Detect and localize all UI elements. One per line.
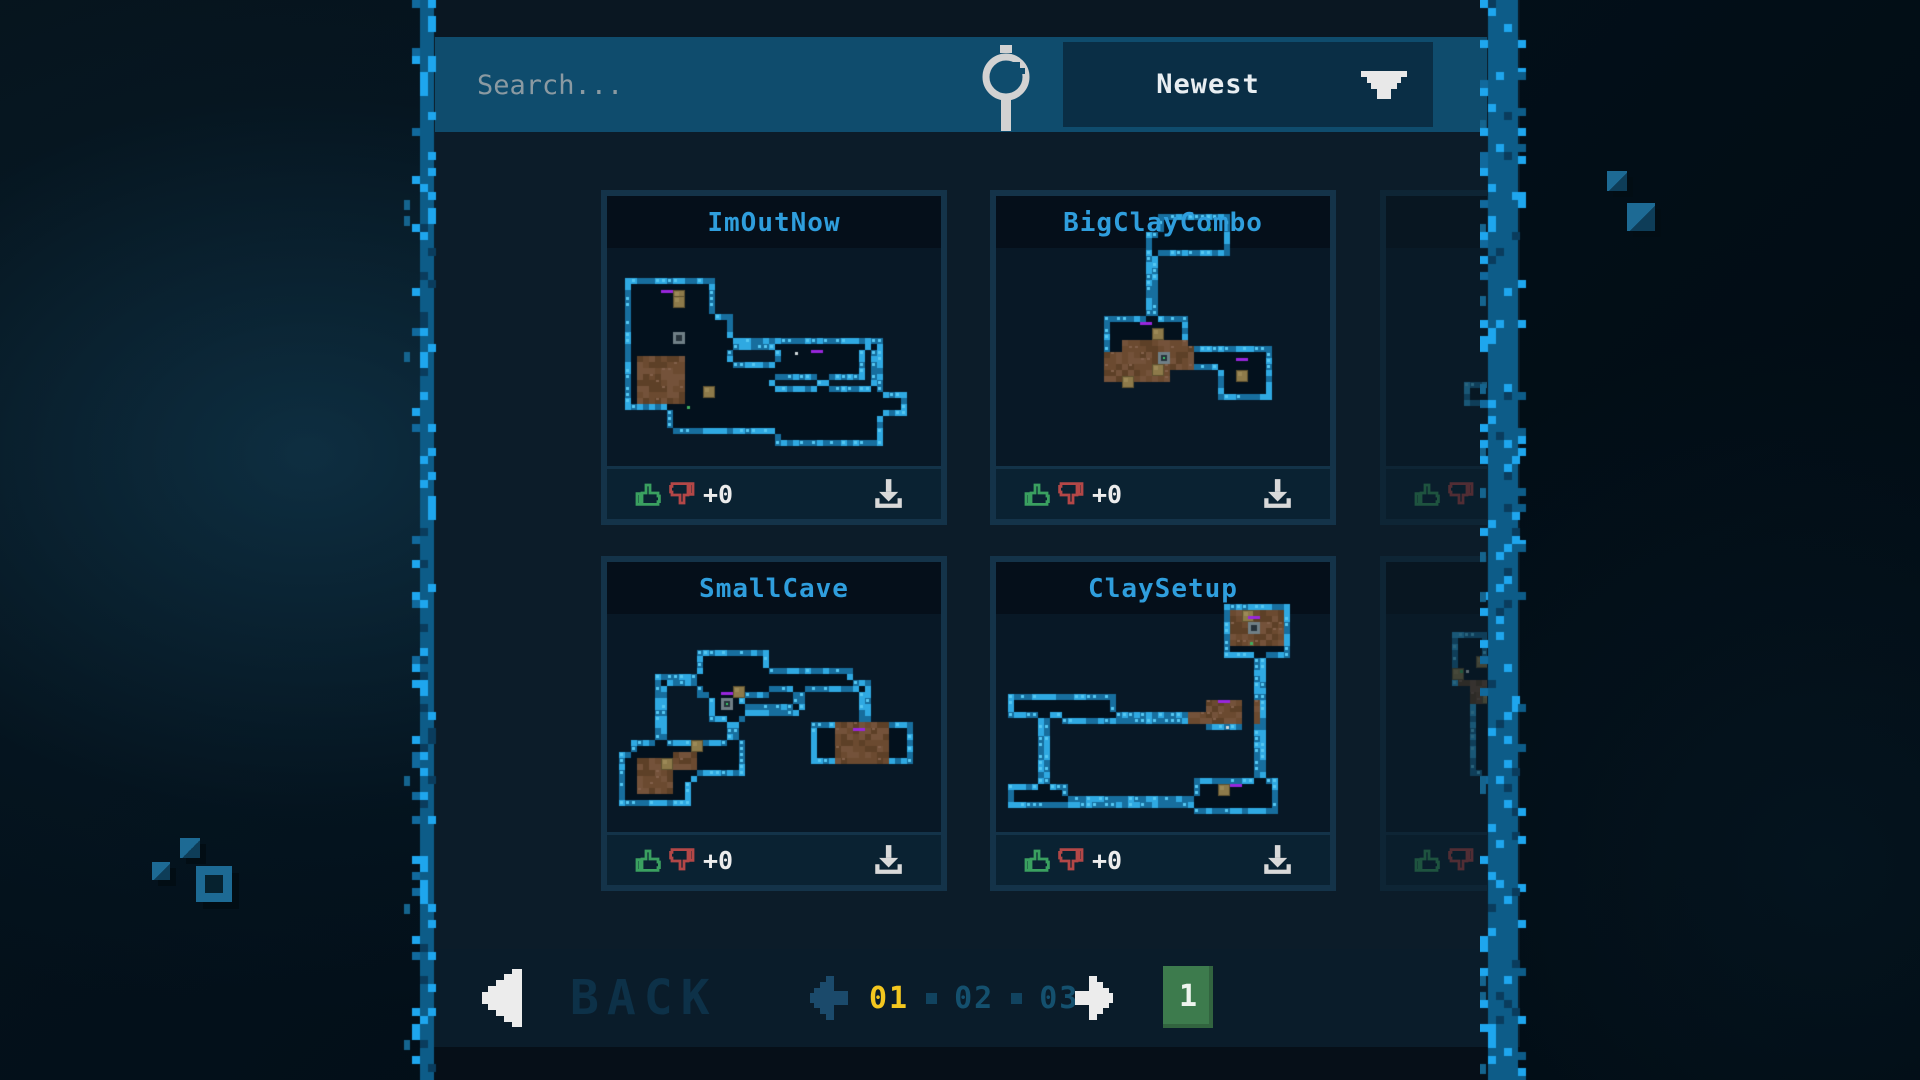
thumbs-up-icon[interactable] [1024,480,1052,508]
page-separator-dot [1011,993,1022,1004]
pixel-decor-square [180,838,200,858]
notification-badge[interactable]: 1 [1163,966,1213,1028]
page-previous-icon[interactable] [808,976,848,1020]
level-card[interactable]: ImOutNow +0 [601,190,947,525]
vote-count: +0 [1092,480,1122,509]
thumbs-up-icon[interactable] [635,846,663,874]
bottom-bar: BACK 010203 1 [435,949,1487,1047]
page-number-03[interactable]: 03 [1039,981,1079,1016]
page-separator-dot [926,993,937,1004]
left-pixel-border [400,0,444,1080]
vote-group: +0 [635,846,733,875]
sort-dropdown[interactable]: Newest [1063,42,1433,127]
page-number-list: 010203 [869,949,1079,1047]
level-card-footer: +0 [996,832,1330,885]
level-card-footer: +0 [996,466,1330,519]
page-next-icon[interactable] [1075,976,1115,1020]
download-icon[interactable] [1260,843,1294,877]
level-card-footer: +0 [607,832,941,885]
level-map-preview [1386,614,1487,832]
pixel-decor-square [1607,171,1627,191]
vote-group: +0 [635,480,733,509]
page-number-02[interactable]: 02 [954,981,994,1016]
level-card-grid: ImOutNow +0 [435,132,1487,949]
thumbs-down-icon[interactable] [667,846,695,874]
level-card[interactable]: Flat [1380,556,1487,891]
thumbs-up-icon[interactable] [1414,846,1442,874]
level-card-footer: +0 [607,466,941,519]
level-card[interactable]: ClaySetup +0 [990,556,1336,891]
level-map-preview [607,614,941,832]
vote-count: +0 [703,480,733,509]
search-icon [980,45,1032,131]
chevron-down-icon [1361,71,1407,99]
thumbs-down-icon[interactable] [1056,846,1084,874]
vote-group: +0 [1024,846,1122,875]
vote-group [1414,480,1482,508]
search-input[interactable] [475,37,959,134]
level-card[interactable] [1380,190,1487,525]
download-icon[interactable] [871,843,905,877]
level-title: ClaySetup [996,562,1330,614]
top-strip [420,0,1520,37]
browser-panel: Newest ImOutNow +0 [420,0,1520,1080]
back-button-label[interactable]: BACK [570,949,718,1047]
level-card-footer [1386,832,1487,885]
thumbs-down-icon[interactable] [1056,480,1084,508]
thumbs-down-icon[interactable] [667,480,695,508]
right-pixel-border [1480,0,1546,1080]
thumbs-up-icon[interactable] [1024,846,1052,874]
level-card-footer [1386,466,1487,519]
vote-count: +0 [1092,846,1122,875]
download-icon[interactable] [1260,477,1294,511]
vote-group [1414,846,1482,874]
level-title: BigClayCombo [996,196,1330,248]
thumbs-down-icon[interactable] [1446,480,1474,508]
pixel-decor-square [1627,203,1655,231]
vote-group: +0 [1024,480,1122,509]
sort-selected-value: Newest [1063,42,1353,127]
back-arrow-icon[interactable] [480,969,526,1027]
vote-count: +0 [703,846,733,875]
search-bar: Newest [435,37,1487,132]
level-card[interactable]: BigClayCombo +0 [990,190,1336,525]
level-title [1386,196,1487,248]
level-card[interactable]: SmallCave +0 [601,556,947,891]
level-map-preview [607,248,941,466]
page-number-01[interactable]: 01 [869,981,909,1016]
bottom-strip [420,1047,1520,1080]
thumbs-up-icon[interactable] [1414,480,1442,508]
level-title: SmallCave [607,562,941,614]
thumbs-down-icon[interactable] [1446,846,1474,874]
level-title: ImOutNow [607,196,941,248]
download-icon[interactable] [871,477,905,511]
thumbs-up-icon[interactable] [635,480,663,508]
pixel-decor-square [196,866,232,902]
level-title: Flat [1386,562,1487,614]
pixel-decor-square [152,862,170,880]
level-browser-screen: Newest ImOutNow +0 [0,0,1920,1080]
